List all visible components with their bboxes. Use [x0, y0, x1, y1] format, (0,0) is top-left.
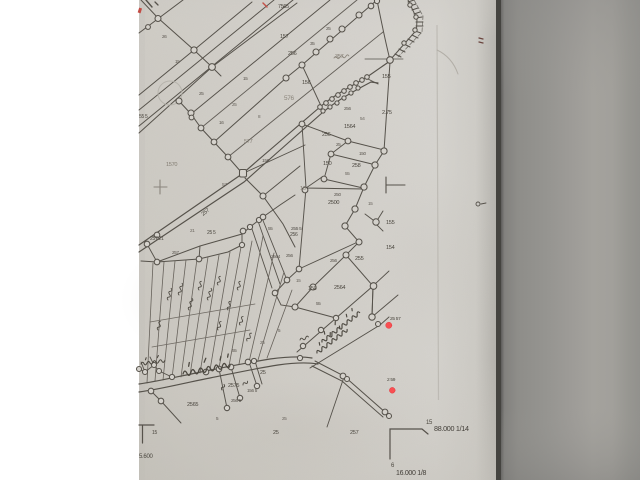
svg-text:35: 35 — [310, 41, 315, 46]
svg-text:257: 257 — [350, 430, 359, 436]
svg-text:2565: 2565 — [187, 402, 198, 408]
svg-text:154: 154 — [386, 245, 395, 251]
svg-text:25: 25 — [336, 142, 341, 147]
svg-text:88.000 1/14: 88.000 1/14 — [434, 424, 469, 433]
svg-text:55: 55 — [232, 348, 237, 353]
svg-text:157: 157 — [280, 34, 289, 40]
svg-text:256 5: 256 5 — [231, 398, 242, 403]
svg-text:25: 25 — [199, 91, 204, 96]
svg-text:54: 54 — [360, 116, 365, 121]
svg-text:256: 256 — [344, 106, 352, 111]
svg-text:15: 15 — [368, 201, 373, 206]
svg-text:150: 150 — [308, 286, 317, 292]
svg-text:256: 256 — [288, 51, 297, 57]
svg-text:250: 250 — [334, 192, 342, 197]
svg-text:150: 150 — [323, 161, 332, 167]
svg-text:257: 257 — [172, 250, 180, 255]
svg-text:256: 256 — [330, 258, 338, 263]
svg-text:257 21: 257 21 — [150, 236, 164, 242]
svg-text:2564: 2564 — [271, 254, 281, 259]
svg-text:256: 256 — [286, 253, 294, 258]
svg-text:25 57: 25 57 — [390, 316, 401, 322]
svg-text:25: 25 — [273, 430, 279, 436]
svg-text:25: 25 — [282, 416, 287, 421]
svg-text:55: 55 — [268, 226, 273, 231]
svg-text:25 5: 25 5 — [207, 230, 216, 236]
svg-text:21: 21 — [190, 228, 195, 233]
svg-text:576: 576 — [284, 95, 295, 102]
svg-text:1570: 1570 — [166, 162, 177, 168]
svg-text:256: 256 — [322, 132, 331, 138]
svg-text:25: 25 — [232, 102, 237, 107]
svg-text:2575: 2575 — [228, 383, 239, 389]
svg-text:25: 25 — [260, 370, 266, 376]
svg-text:150: 150 — [359, 151, 367, 156]
svg-text:155: 155 — [382, 74, 391, 80]
svg-text:256: 256 — [290, 232, 298, 238]
svg-text:255: 255 — [355, 256, 364, 262]
svg-text:2.75: 2.75 — [382, 110, 392, 116]
svg-text:150: 150 — [262, 158, 270, 164]
svg-text:7565: 7565 — [278, 4, 289, 10]
svg-text:2 59: 2 59 — [387, 377, 396, 383]
svg-text:55 5: 55 5 — [139, 114, 148, 120]
svg-text:15: 15 — [175, 59, 180, 64]
svg-text:155: 155 — [386, 220, 395, 226]
svg-text:1564: 1564 — [344, 124, 355, 130]
svg-text:255 5: 255 5 — [291, 226, 302, 232]
svg-text:15: 15 — [243, 76, 248, 81]
svg-text:16.000 1/8: 16.000 1/8 — [396, 470, 426, 477]
svg-text:16: 16 — [219, 120, 224, 125]
svg-text:5.600: 5.600 — [139, 454, 153, 460]
svg-text:57: 57 — [222, 182, 227, 188]
svg-text:25: 25 — [326, 26, 331, 31]
svg-text:156 5: 156 5 — [247, 388, 258, 393]
svg-text:15: 15 — [426, 420, 433, 426]
svg-text:16: 16 — [300, 186, 306, 192]
svg-text:26: 26 — [162, 34, 167, 39]
svg-text:55: 55 — [345, 171, 350, 176]
svg-text:258: 258 — [352, 163, 361, 169]
svg-text:156: 156 — [302, 80, 311, 86]
svg-text:15: 15 — [152, 430, 157, 436]
svg-text:15: 15 — [296, 278, 301, 283]
svg-text:2500: 2500 — [328, 200, 339, 206]
svg-text:25: 25 — [260, 340, 265, 345]
svg-text:2564: 2564 — [334, 285, 345, 291]
svg-text:55: 55 — [316, 301, 321, 306]
svg-text:577: 577 — [244, 139, 253, 145]
